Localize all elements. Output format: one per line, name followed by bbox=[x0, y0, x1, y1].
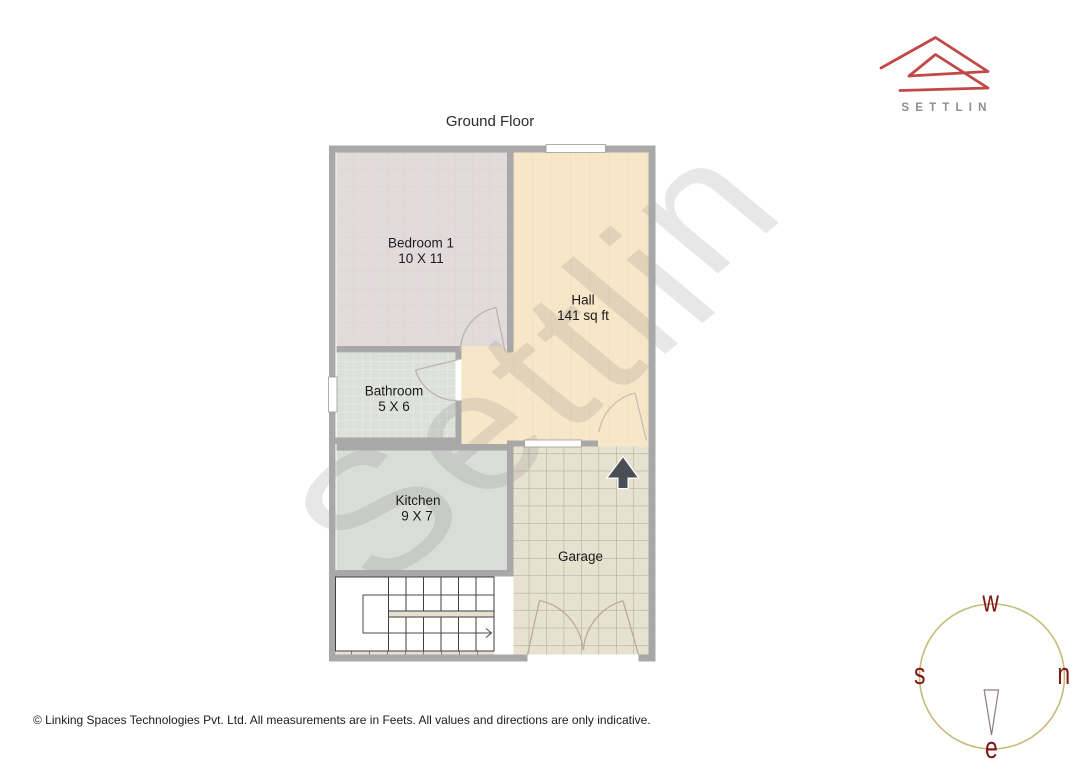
svg-text:10 X 11: 10 X 11 bbox=[398, 251, 444, 266]
svg-text:n: n bbox=[1057, 656, 1070, 691]
svg-text:5 X 6: 5 X 6 bbox=[378, 399, 410, 414]
svg-text:Garage: Garage bbox=[558, 549, 603, 564]
svg-text:SETTLIN: SETTLIN bbox=[901, 102, 992, 114]
svg-text:Kitchen: Kitchen bbox=[395, 493, 440, 508]
svg-text:Ground Floor: Ground Floor bbox=[446, 113, 534, 130]
svg-text:w: w bbox=[982, 583, 1000, 618]
svg-text:© Linking Spaces Technologies: © Linking Spaces Technologies Pvt. Ltd. … bbox=[33, 713, 651, 727]
svg-text:Bathroom: Bathroom bbox=[365, 384, 424, 399]
svg-text:s: s bbox=[914, 656, 925, 691]
svg-text:Bedroom 1: Bedroom 1 bbox=[388, 236, 454, 251]
svg-text:141 sq ft: 141 sq ft bbox=[557, 308, 609, 323]
svg-text:9 X 7: 9 X 7 bbox=[401, 509, 433, 524]
svg-text:Hall: Hall bbox=[571, 293, 594, 308]
